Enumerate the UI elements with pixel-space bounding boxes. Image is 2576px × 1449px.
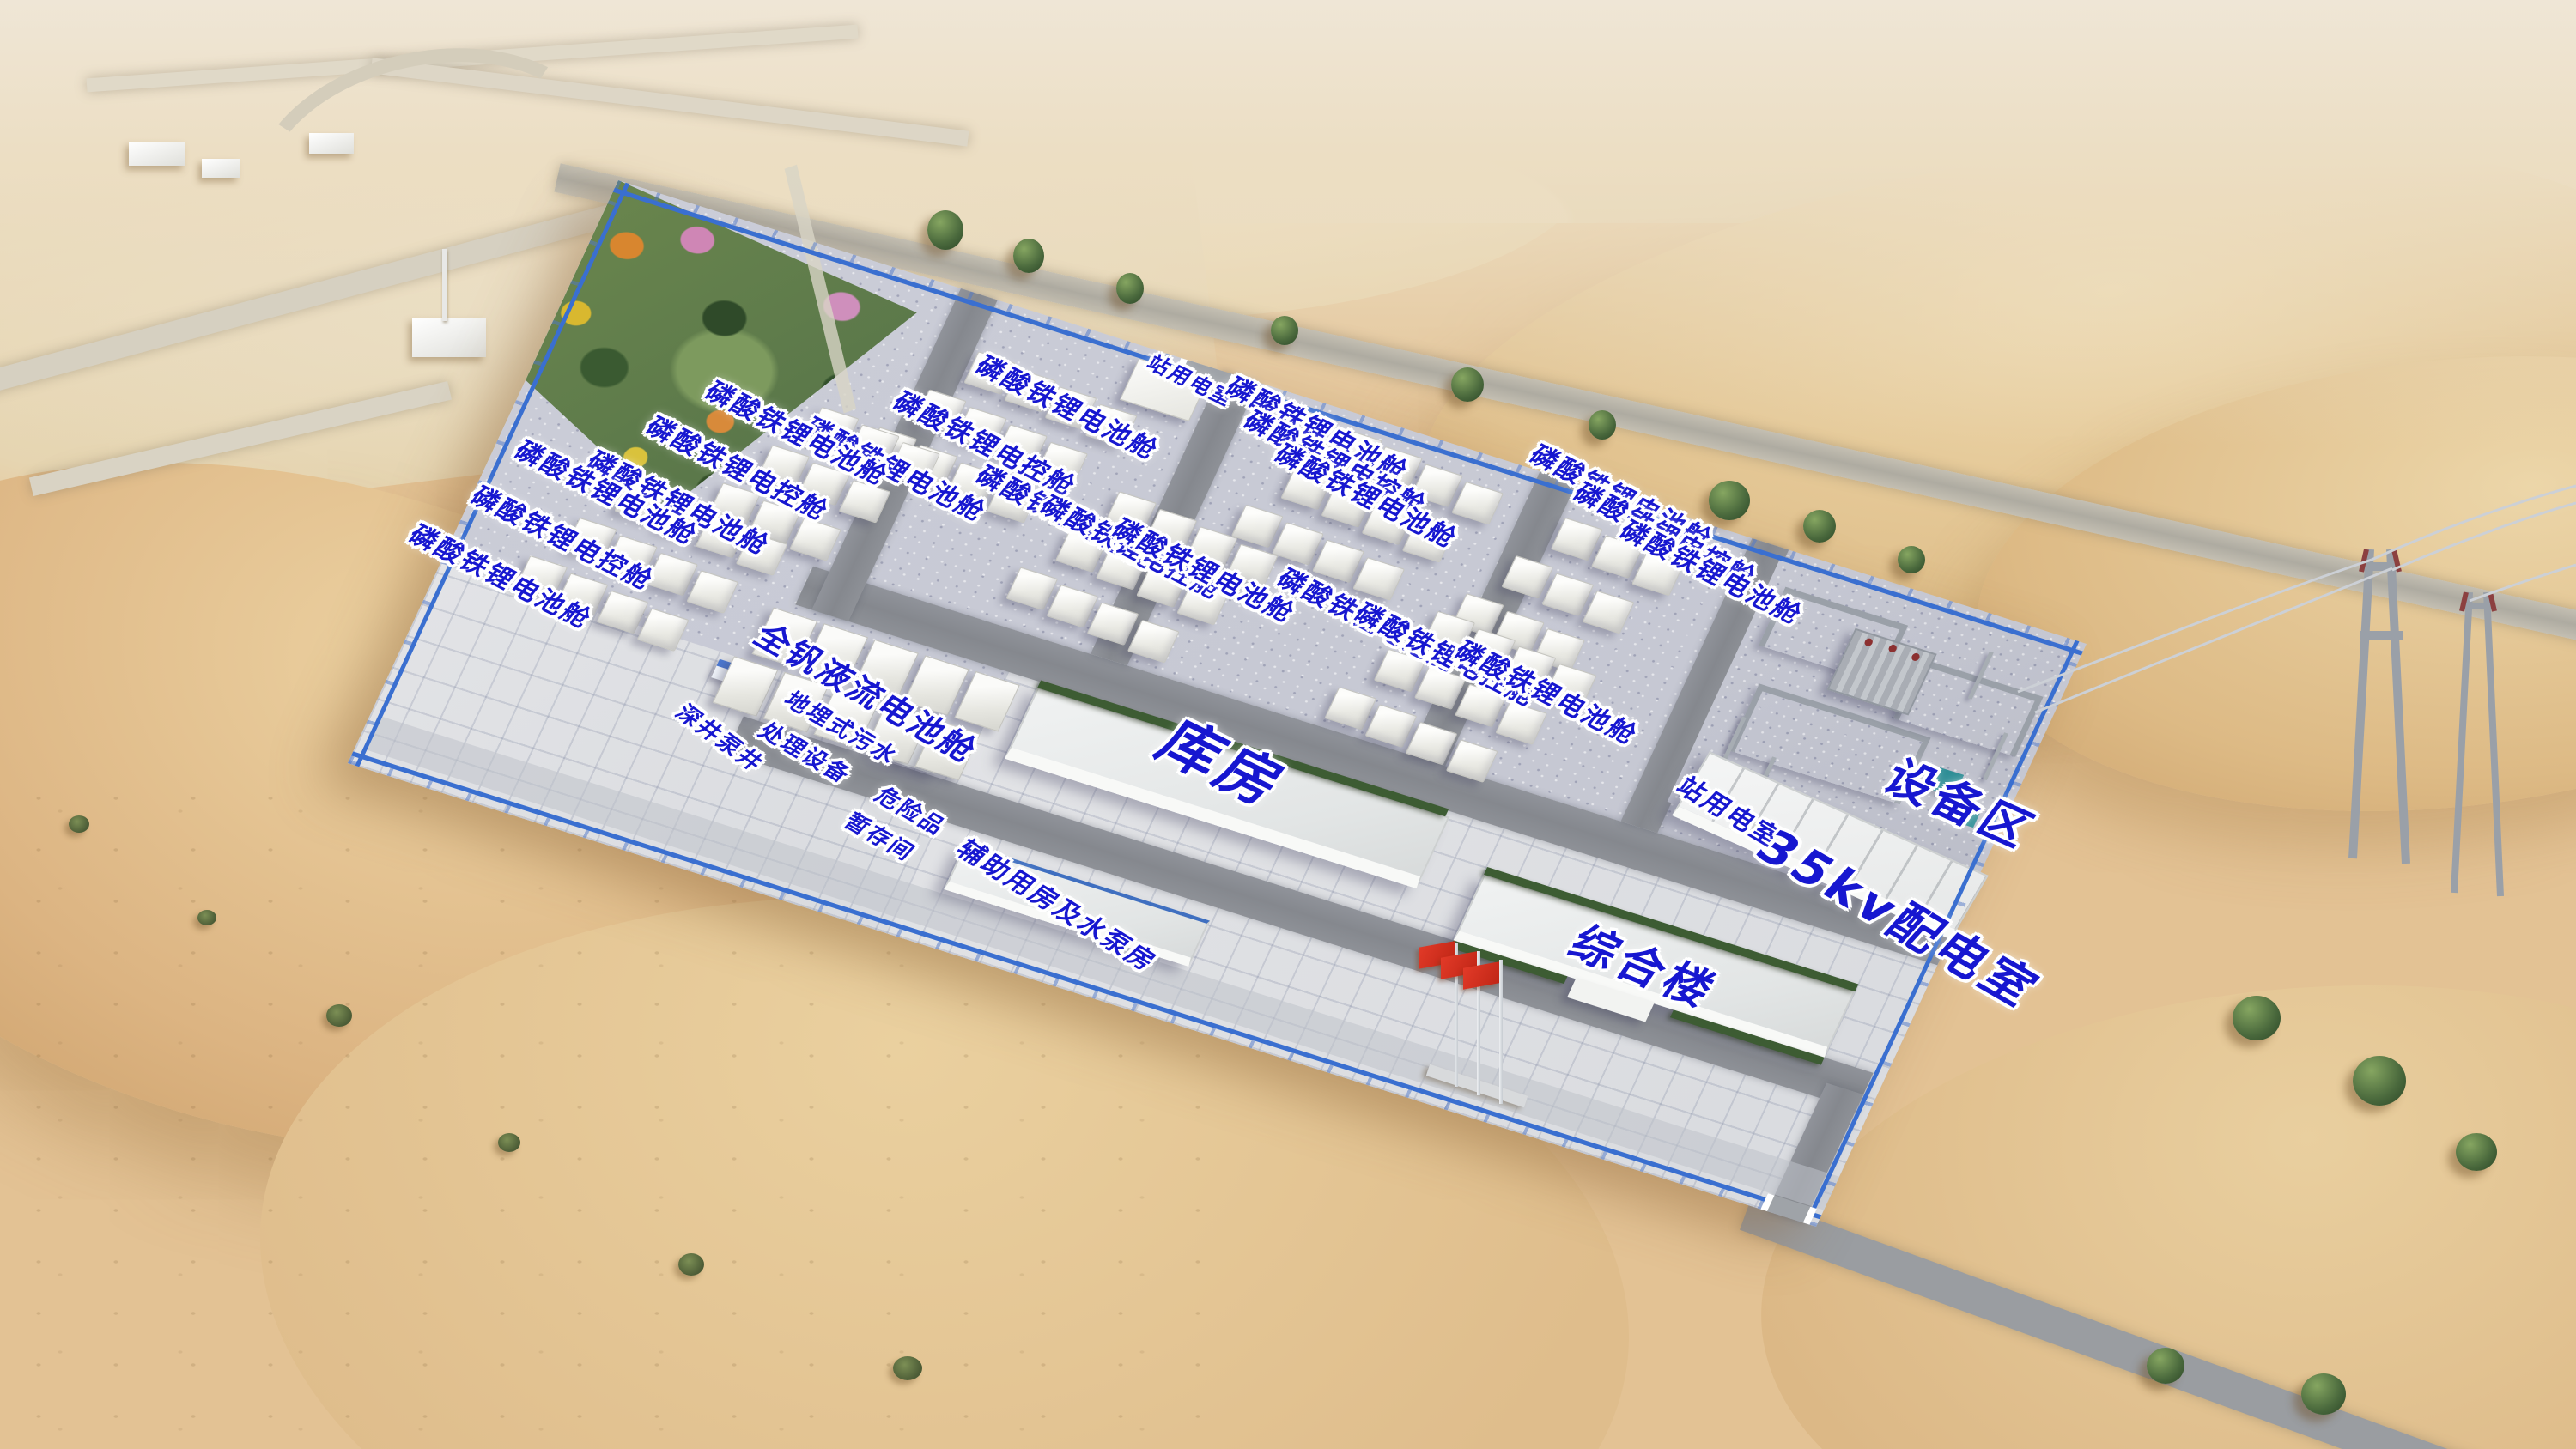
- site-labels-layer: 站用电室磷酸铁锂电池舱磷酸铁锂电控舱磷酸铁锂电池舱磷酸铁锂电池舱磷酸铁锂电控舱磷…: [0, 0, 2576, 1449]
- label-lfp-battery-cabin: 磷酸铁锂电池舱: [1448, 631, 1649, 751]
- label-office-building: 综合楼: [1558, 908, 1734, 1019]
- aerial-render-canvas: 站用电室磷酸铁锂电池舱磷酸铁锂电控舱磷酸铁锂电池舱磷酸铁锂电池舱磷酸铁锂电控舱磷…: [0, 0, 2576, 1449]
- label-warehouse: 库房: [1142, 697, 1309, 822]
- label-auxiliary-pump-house: 辅助用房及水泵房: [949, 830, 1168, 978]
- label-equipment-area: 设备区: [1872, 742, 2054, 861]
